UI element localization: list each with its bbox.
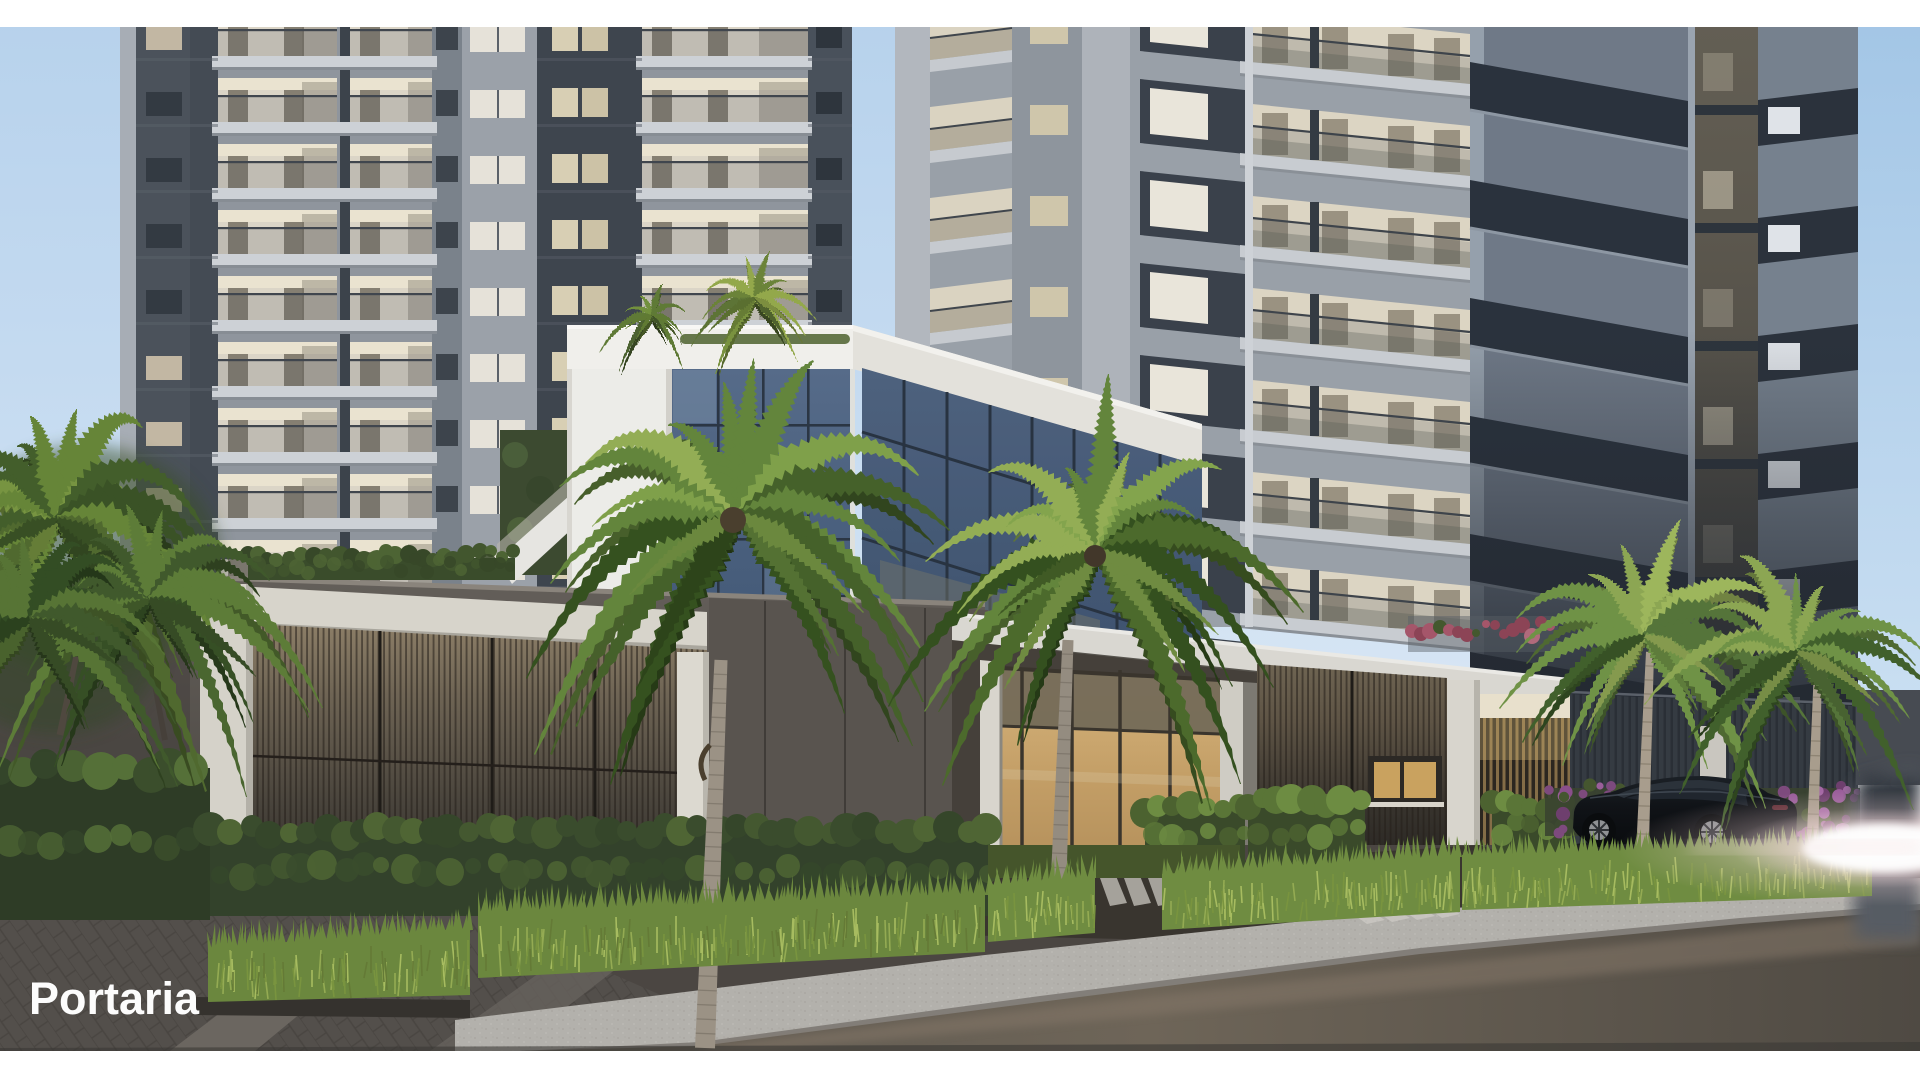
svg-text:Portaria: Portaria [29, 973, 200, 1024]
